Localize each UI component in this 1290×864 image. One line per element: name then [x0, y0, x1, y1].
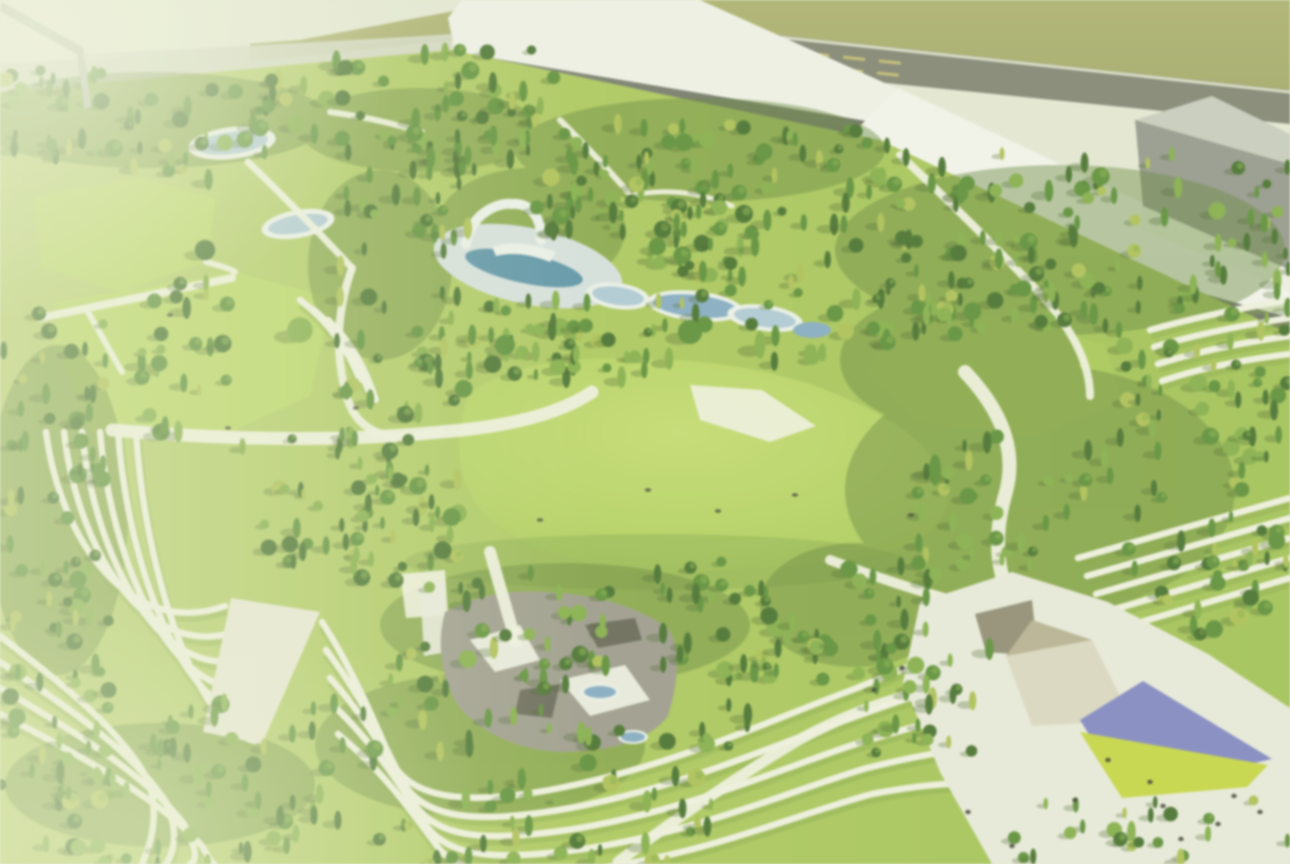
broadleaf-tree [579, 319, 593, 333]
conifer-tree [1043, 515, 1049, 532]
tree-highlight [413, 127, 421, 135]
conifer-tree [86, 608, 93, 627]
broadleaf-tree [282, 536, 298, 552]
conifer-tree [203, 274, 209, 290]
conifer-tree [339, 737, 345, 754]
broadleaf-tree [1008, 831, 1021, 844]
broadleaf-tree [162, 164, 175, 177]
conifer-tree [1089, 303, 1097, 325]
tree-highlight [886, 336, 893, 343]
broadleaf-tree [412, 224, 426, 238]
conifer-tree [640, 119, 647, 137]
tree-highlight [942, 309, 948, 315]
tree-highlight [917, 488, 923, 494]
tree-highlight [1123, 340, 1131, 348]
broadleaf-tree [989, 184, 1002, 197]
conifer-tree [948, 271, 955, 289]
conifer-tree [337, 255, 345, 276]
conifer-tree [91, 653, 100, 675]
conifer-tree [262, 145, 268, 160]
bird-dot [353, 406, 359, 410]
tree-highlight [481, 625, 488, 632]
broadleaf-tree [990, 429, 1004, 443]
tree-highlight [48, 325, 55, 332]
broadleaf-tree [8, 96, 21, 109]
broadleaf-tree [64, 344, 79, 359]
broadleaf-tree [101, 682, 117, 698]
tree-highlight [576, 835, 583, 842]
conifer-tree [239, 438, 245, 454]
conifer-tree [1081, 153, 1089, 173]
broadleaf-tree [1255, 366, 1266, 377]
broadleaf-tree [649, 238, 666, 255]
tree-highlight [980, 323, 985, 328]
conifer-tree [873, 678, 879, 694]
tree-highlight [1216, 204, 1224, 212]
conifer-tree [792, 132, 797, 146]
conifer-tree [1154, 442, 1161, 461]
conifer-tree [539, 704, 544, 717]
conifer-tree [336, 287, 344, 307]
conifer-tree [1238, 462, 1245, 480]
broadleaf-tree [14, 82, 28, 96]
conifer-tree [6, 535, 13, 553]
bird-dot [167, 313, 173, 317]
tree-highlight [217, 766, 224, 773]
broadleaf-tree [550, 359, 566, 375]
conifer-tree [78, 128, 86, 149]
broadleaf-tree [907, 657, 924, 674]
broadleaf-tree [725, 284, 737, 296]
tree-highlight [738, 187, 745, 194]
conifer-tree [56, 733, 62, 749]
broadleaf-tree [614, 725, 626, 737]
conifer-tree [1247, 551, 1253, 567]
conifer-tree [534, 369, 538, 380]
conifer-tree [771, 325, 779, 346]
conifer-tree [1045, 180, 1053, 202]
broadleaf-tree [987, 292, 1004, 309]
broadleaf-tree [1120, 392, 1135, 407]
conifer-tree [155, 839, 161, 856]
conifer-tree [440, 286, 445, 300]
broadleaf-tree [69, 571, 86, 588]
tree-highlight [768, 301, 772, 305]
conifer-tree [1011, 308, 1017, 324]
conifer-tree [1115, 260, 1120, 273]
conifer-tree [938, 157, 946, 177]
conifer-tree [995, 230, 1001, 246]
conifer-tree [421, 44, 429, 65]
conifer-tree [1000, 147, 1005, 160]
conifer-tree [52, 716, 57, 729]
conifer-tree [42, 383, 50, 404]
broadleaf-tree [499, 629, 512, 642]
conifer-tree [660, 583, 665, 596]
tree-highlight [876, 295, 880, 299]
broadleaf-tree [279, 92, 293, 106]
conifer-tree [73, 610, 79, 626]
tree-highlight [1246, 432, 1250, 436]
conifer-tree [135, 109, 141, 124]
tree-highlight [128, 122, 132, 126]
conifer-tree [21, 431, 29, 451]
conifer-tree [1229, 511, 1233, 523]
conifer-tree [243, 841, 251, 863]
person-dot [1160, 804, 1166, 808]
tree-highlight [73, 636, 80, 643]
tree-highlight [579, 648, 587, 656]
conifer-tree [659, 623, 667, 644]
tree-highlight [766, 663, 770, 667]
conifer-tree [585, 727, 592, 746]
conifer-tree [1283, 247, 1288, 259]
conifer-tree [157, 759, 161, 770]
conifer-tree [1285, 834, 1290, 848]
park-aerial-render [0, 0, 1290, 864]
conifer-tree [1148, 807, 1154, 822]
broadleaf-tree [424, 696, 438, 710]
tree-highlight [943, 485, 948, 490]
conifer-tree [644, 152, 649, 165]
conifer-tree [360, 706, 366, 721]
conifer-tree [316, 784, 324, 804]
tree-highlight [858, 669, 864, 675]
broadleaf-tree [1249, 796, 1259, 806]
conifer-tree [593, 161, 599, 176]
person-dot [1147, 780, 1153, 784]
conifer-tree [392, 184, 400, 206]
broadleaf-tree [484, 355, 501, 372]
tree-highlight [75, 558, 80, 563]
conifer-tree [518, 128, 526, 148]
broadleaf-tree [446, 851, 458, 863]
broadleaf-tree [217, 135, 233, 151]
conifer-tree [824, 251, 831, 268]
conifer-tree [584, 294, 591, 312]
conifer-tree [183, 152, 188, 166]
tree-highlight [81, 589, 89, 597]
tree-highlight [456, 551, 462, 557]
tree-highlight [678, 201, 685, 208]
broadleaf-tree [98, 319, 108, 329]
broadleaf-tree [2, 688, 19, 705]
conifer-tree [958, 293, 963, 306]
conifer-tree [439, 225, 445, 240]
conifer-tree [700, 191, 706, 207]
conifer-tree [1044, 798, 1048, 810]
conifer-tree [619, 210, 623, 221]
tree-highlight [201, 138, 207, 144]
broadleaf-tree [547, 71, 560, 84]
tree-highlight [1099, 170, 1107, 178]
conifer-tree [352, 430, 358, 446]
conifer-tree [1264, 451, 1269, 463]
broadleaf-tree [1153, 837, 1164, 848]
broadleaf-tree [571, 137, 583, 149]
tree-highlight [719, 224, 725, 230]
tree-highlight [417, 479, 425, 487]
tree-highlight [721, 580, 727, 586]
conifer-tree [1000, 553, 1005, 566]
conifer-tree [357, 330, 365, 350]
conifer-tree [350, 557, 357, 575]
conifer-tree [727, 163, 733, 178]
conifer-tree [1248, 209, 1255, 227]
conifer-tree [260, 739, 266, 755]
conifer-tree [712, 170, 719, 189]
broadleaf-tree [600, 170, 609, 179]
conifer-tree [1101, 449, 1108, 468]
broadleaf-tree [1174, 303, 1185, 314]
person-dot [1105, 758, 1111, 762]
conifer-tree [10, 615, 16, 631]
tree-highlight [395, 574, 402, 581]
conifer-tree [582, 142, 588, 159]
conifer-tree [311, 124, 319, 144]
tree-highlight [408, 822, 412, 826]
conifer-tree [510, 707, 517, 726]
conifer-tree [507, 149, 515, 169]
conifer-tree [1080, 819, 1085, 833]
broadleaf-tree [558, 606, 571, 619]
tree-highlight [1168, 349, 1172, 353]
tree-highlight [294, 118, 302, 126]
broadleaf-tree [71, 677, 81, 687]
conifer-tree [330, 693, 338, 713]
conifer-tree [413, 187, 420, 206]
conifer-tree [654, 564, 662, 584]
tree-highlight [1277, 207, 1282, 212]
conifer-tree [66, 786, 71, 800]
conifer-tree [1261, 213, 1269, 233]
conifer-tree [1189, 275, 1197, 295]
conifer-tree [537, 97, 544, 115]
conifer-tree [553, 794, 558, 806]
conifer-tree [771, 352, 778, 371]
tree-highlight [728, 742, 732, 746]
tree-highlight [810, 346, 815, 351]
conifer-tree [1262, 251, 1268, 267]
conifer-tree [892, 714, 899, 733]
conifer-tree [1283, 554, 1288, 568]
tree-highlight [890, 279, 895, 284]
broadleaf-tree [580, 754, 597, 771]
conifer-tree [18, 401, 24, 417]
conifer-tree [1136, 393, 1141, 406]
broadleaf-tree [837, 323, 854, 340]
conifer-tree [1194, 343, 1200, 359]
broadleaf-tree [716, 557, 726, 567]
broadleaf-tree [602, 363, 611, 372]
conifer-tree [427, 360, 433, 375]
tree-highlight [527, 790, 531, 794]
render-canvas [0, 0, 1290, 864]
conifer-tree [519, 81, 527, 102]
conifer-tree [923, 305, 931, 325]
conifer-tree [928, 173, 936, 194]
conifer-tree [980, 230, 986, 245]
conifer-tree [168, 152, 174, 167]
tree-highlight [514, 368, 520, 374]
conifer-tree [293, 518, 301, 538]
conifer-tree [440, 337, 448, 357]
conifer-tree [182, 297, 190, 319]
conifer-tree [301, 488, 306, 500]
conifer-tree [900, 609, 908, 630]
conifer-tree [344, 200, 351, 217]
conifer-tree [276, 806, 284, 827]
conifer-tree [970, 548, 975, 561]
conifer-tree [1151, 480, 1157, 496]
conifer-tree [755, 331, 766, 359]
broadleaf-tree [495, 335, 515, 355]
person-dot [1257, 810, 1263, 814]
tree-highlight [565, 659, 571, 665]
tree-highlight [195, 339, 201, 345]
conifer-tree [458, 582, 463, 595]
broadleaf-tree [356, 111, 365, 120]
conifer-tree [362, 242, 367, 255]
tree-highlight [374, 210, 378, 214]
conifer-tree [436, 742, 444, 762]
conifer-tree [86, 766, 91, 778]
conifer-tree [91, 66, 98, 84]
tree-highlight [932, 667, 939, 674]
tree-highlight [1035, 268, 1042, 275]
conifer-tree [448, 310, 454, 325]
tree-highlight [356, 534, 362, 540]
broadleaf-tree [824, 638, 834, 648]
tree-highlight [867, 735, 872, 740]
conifer-tree [485, 708, 492, 727]
conifer-tree [467, 351, 471, 362]
conifer-tree [667, 587, 673, 603]
broadleaf-tree [420, 641, 430, 651]
conifer-tree [382, 301, 387, 314]
conifer-tree [983, 431, 992, 453]
conifer-tree [660, 656, 666, 672]
conifer-tree [912, 322, 919, 341]
pond-water [621, 732, 645, 742]
conifer-tree [1215, 234, 1222, 252]
broadleaf-tree [745, 318, 758, 331]
conifer-tree [526, 145, 530, 156]
conifer-tree [1212, 543, 1217, 556]
tree-highlight [838, 145, 842, 149]
broadleaf-tree [576, 175, 586, 185]
person-dot [1178, 837, 1184, 841]
person-dot [871, 688, 877, 692]
bird-dot [908, 513, 914, 517]
tree-highlight [1133, 246, 1139, 252]
conifer-tree [866, 185, 872, 200]
conifer-tree [662, 318, 667, 332]
conifer-tree [311, 701, 316, 715]
conifer-tree [946, 736, 951, 749]
broadleaf-tree [398, 562, 408, 572]
conifer-tree [1274, 282, 1281, 300]
tree-highlight [469, 64, 477, 72]
conifer-tree [1063, 504, 1069, 520]
broadleaf-tree [1129, 214, 1140, 225]
broadleaf-tree [668, 123, 679, 134]
conifer-tree [1146, 374, 1152, 389]
broadleaf-tree [653, 255, 667, 269]
conifer-tree [36, 673, 43, 692]
tree-highlight [610, 777, 618, 785]
broadleaf-tree [724, 119, 736, 131]
conifer-tree [442, 680, 449, 698]
broadleaf-tree [760, 607, 777, 624]
conifer-tree [94, 463, 103, 485]
tree-highlight [1113, 824, 1120, 831]
conifer-tree [801, 214, 807, 231]
conifer-tree [335, 446, 340, 460]
tree-highlight [284, 816, 291, 823]
broadleaf-tree [144, 93, 158, 107]
broadleaf-tree [519, 671, 528, 680]
person-dot [1072, 798, 1078, 802]
broadleaf-tree [960, 488, 977, 505]
tree-highlight [1063, 314, 1070, 321]
broadleaf-tree [279, 484, 289, 494]
tree-highlight [967, 279, 972, 284]
conifer-tree [453, 287, 460, 306]
conifer-tree [46, 134, 52, 149]
tree-highlight [386, 492, 393, 499]
conifer-tree [528, 565, 534, 581]
broadleaf-tree [542, 168, 560, 186]
conifer-tree [870, 568, 877, 585]
tree-highlight [459, 45, 465, 51]
conifer-tree [1074, 215, 1080, 230]
conifer-tree [1117, 428, 1124, 447]
conifer-tree [438, 671, 442, 682]
tree-highlight [75, 601, 83, 609]
conifer-tree [56, 762, 65, 784]
conifer-tree [665, 348, 674, 370]
conifer-tree [290, 795, 296, 811]
conifer-tree [77, 463, 82, 476]
conifer-tree [842, 192, 850, 213]
conifer-tree [86, 741, 92, 755]
conifer-tree [466, 361, 473, 379]
broadleaf-tree [659, 733, 676, 750]
tree-highlight [743, 207, 751, 215]
conifer-tree [788, 275, 794, 290]
conifer-tree [969, 316, 974, 328]
conifer-tree [1275, 426, 1282, 444]
conifer-tree [1084, 440, 1092, 461]
broadleaf-tree [1268, 533, 1285, 550]
conifer-tree [1270, 400, 1278, 421]
tree-highlight [927, 735, 932, 740]
tree-highlight [378, 835, 384, 841]
broadleaf-tree [378, 76, 389, 87]
conifer-tree [137, 141, 142, 154]
conifer-tree [447, 526, 454, 543]
broadleaf-tree [777, 207, 786, 216]
conifer-tree [696, 205, 702, 220]
conifer-tree [915, 534, 922, 553]
broadleaf-tree [1234, 482, 1249, 497]
conifer-tree [738, 266, 746, 286]
conifer-tree [334, 333, 340, 348]
tree-highlight [1232, 239, 1236, 243]
broadleaf-tree [1133, 837, 1144, 848]
broadleaf-tree [387, 136, 396, 145]
